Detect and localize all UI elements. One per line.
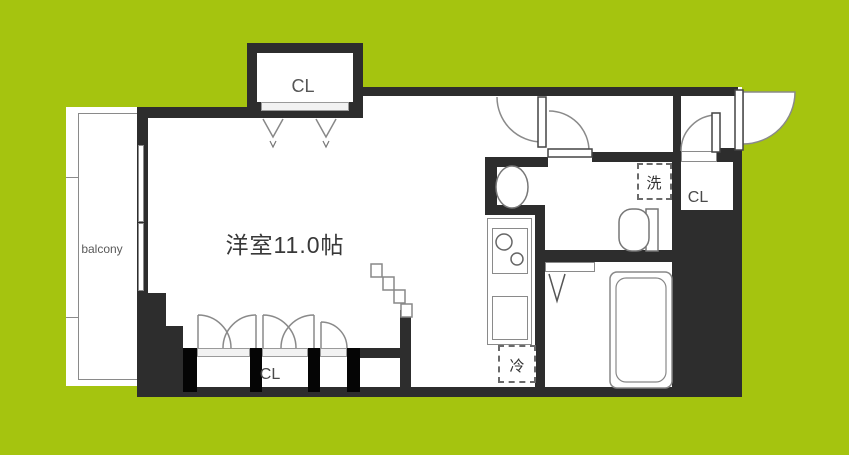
washroom-door-arc — [549, 111, 589, 151]
hall-door-arc — [497, 97, 542, 142]
closet-door-arc — [223, 315, 256, 348]
refrigerator-label: 冷 — [502, 355, 532, 376]
partition-square — [394, 290, 405, 303]
washroom-door-leaf — [548, 149, 592, 157]
closet-bottom-label: CL — [250, 366, 290, 384]
bifold-door-symbol — [316, 119, 336, 137]
partition-square — [383, 277, 394, 290]
partition-square — [401, 304, 412, 317]
bifold-door-symbol — [263, 119, 283, 137]
floorplan-canvas: balcony 洋室11.0帖 CL CL CL 洗 冷 — [0, 0, 849, 455]
partition-square — [371, 264, 382, 277]
closet-entry-label: CL — [678, 189, 718, 207]
hall-door-leaf — [538, 97, 546, 147]
main-room-label: 洋室11.0帖 — [200, 226, 370, 260]
bath-fold-door-symbol — [549, 274, 565, 301]
bathtub — [610, 272, 672, 388]
closet-door-arc — [281, 315, 314, 348]
stove-burner — [496, 234, 512, 250]
toilet-bowl — [619, 209, 649, 251]
closet-door-arc — [198, 315, 231, 348]
front-door-leaf — [735, 90, 743, 150]
closet-door-arc — [321, 322, 347, 348]
entry-door-leaf — [712, 113, 720, 152]
front-door-swing-arc — [743, 92, 795, 144]
closet-door-arc — [263, 315, 296, 348]
stove-burner — [511, 253, 523, 265]
wash-basin — [496, 166, 528, 208]
washer-label: 洗 — [639, 172, 669, 193]
closet-top-label: CL — [285, 76, 321, 97]
bifold-tick — [323, 141, 329, 147]
balcony-label: balcony — [72, 242, 132, 256]
fixtures-layer — [0, 0, 849, 455]
bifold-tick — [270, 141, 276, 147]
